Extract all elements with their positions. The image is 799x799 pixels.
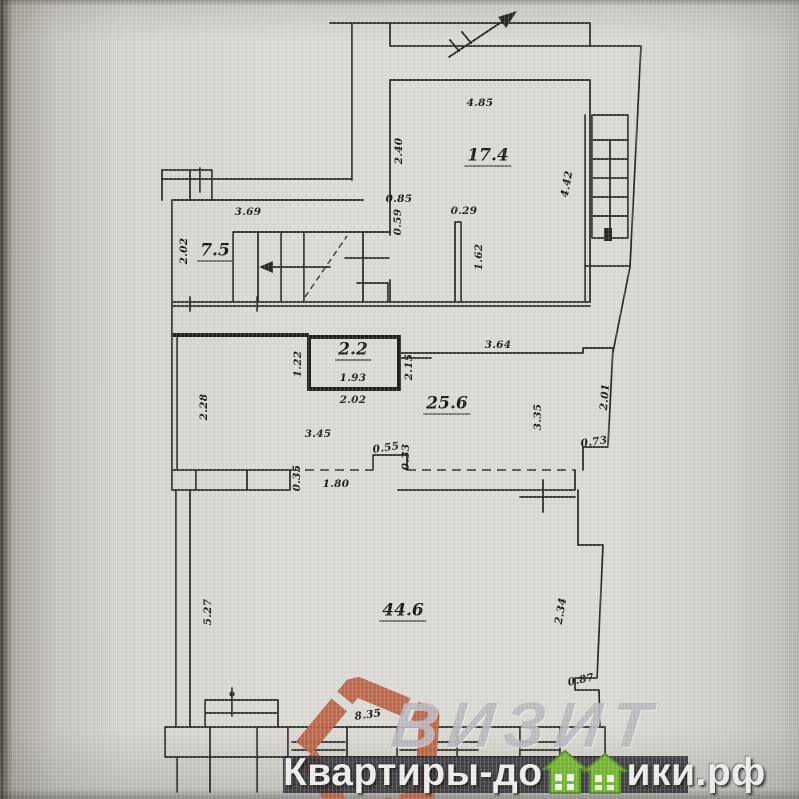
dim-label-3.45: 3.45 xyxy=(305,428,332,440)
dim-label-2.02: 2.02 xyxy=(178,238,190,265)
dim-label-3.64: 3.64 xyxy=(485,339,512,351)
dim-label-1.93: 1.93 xyxy=(340,372,367,384)
dim-label-0.29: 0.29 xyxy=(451,205,478,217)
dim-label-1.80: 1.80 xyxy=(323,478,350,490)
dim-label-2.40: 2.40 xyxy=(393,138,405,165)
dim-label-0.33: 0.33 xyxy=(400,444,412,471)
dim-label-2.28: 2.28 xyxy=(198,394,210,421)
floor-plan-photo: 4.852.404.420.850.590.291.623.692.021.22… xyxy=(0,0,799,799)
room-label-44.6: 44.6 xyxy=(379,601,426,622)
dim-label-2.15: 2.15 xyxy=(403,354,415,381)
dim-label-4.42: 4.42 xyxy=(559,170,575,198)
dim-label-3.35: 3.35 xyxy=(532,404,544,431)
dim-label-1.62: 1.62 xyxy=(473,244,485,271)
dim-label-5.27: 5.27 xyxy=(202,599,214,626)
dim-label-2.02: 2.02 xyxy=(340,394,367,406)
dim-label-0.55: 0.55 xyxy=(372,440,400,456)
dim-label-0.73: 0.73 xyxy=(580,434,608,450)
dim-label-4.85: 4.85 xyxy=(467,97,494,109)
dim-label-2.01: 2.01 xyxy=(598,383,612,411)
dim-label-0.87: 0.87 xyxy=(567,671,596,688)
watermark-band xyxy=(283,756,688,793)
room-label-25.6: 25.6 xyxy=(423,394,470,415)
dim-label-0.85: 0.85 xyxy=(386,193,413,205)
dim-label-0.35: 0.35 xyxy=(291,465,303,492)
room-label-17.4: 17.4 xyxy=(464,146,511,167)
room-label-2.2: 2.2 xyxy=(335,340,371,361)
dim-label-2.34: 2.34 xyxy=(553,597,569,625)
room-label-7.5: 7.5 xyxy=(197,241,233,262)
dim-label-0.59: 0.59 xyxy=(392,209,404,236)
dim-label-1.22: 1.22 xyxy=(292,351,304,378)
dim-label-3.69: 3.69 xyxy=(235,206,262,218)
